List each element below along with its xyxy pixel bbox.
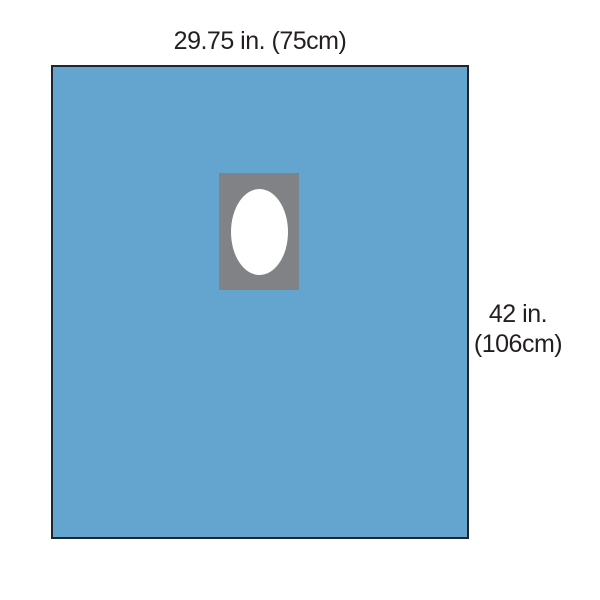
diagram-canvas: 29.75 in. (75cm) 42 in. (106cm) — [0, 0, 600, 600]
height-dimension-line1: 42 in. — [462, 299, 574, 329]
height-dimension-label: 42 in. (106cm) — [462, 299, 574, 359]
fenestration-opening — [231, 189, 288, 275]
fenestration-patch — [219, 173, 299, 290]
width-dimension-label: 29.75 in. (75cm) — [51, 26, 469, 56]
height-dimension-line2: (106cm) — [462, 329, 574, 359]
surgical-drape — [51, 65, 469, 539]
